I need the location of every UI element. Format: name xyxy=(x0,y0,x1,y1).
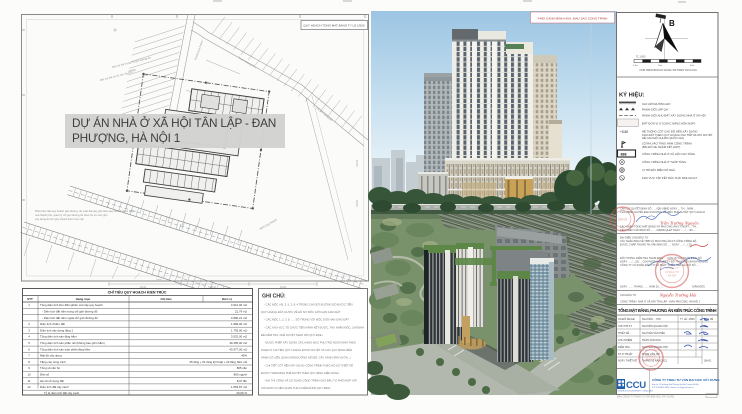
svg-text:4.890,21 m2: 4.890,21 m2 xyxy=(231,316,247,320)
svg-text:1.653,87 m2: 1.653,87 m2 xyxy=(231,385,247,389)
svg-text:Tổng diện tích sàn phần nổi (k: Tổng diện tích sàn phần nổi (không bao g… xyxy=(40,341,105,345)
svg-text:Chỉ tiêu: Chỉ tiêu xyxy=(161,297,172,301)
svg-text:25 tầng + 01 tầng kỹ thuật + 0: 25 tầng + 01 tầng kỹ thuật + 02 tầng hầm… xyxy=(189,360,247,364)
svg-text:21,79 m2: 21,79 m2 xyxy=(235,310,247,314)
svg-text:Diện tích đất cây xanh: Diện tích đất cây xanh xyxy=(40,385,69,389)
svg-text:Hệ số sử dụng đất: Hệ số sử dụng đất xyxy=(40,379,64,383)
svg-text:Dân số: Dân số xyxy=(40,373,50,377)
svg-text:Mật độ xây dựng: Mật độ xây dựng xyxy=(40,354,62,358)
svg-text:Tổng diện tích khu đất nghiên: Tổng diện tích khu đất nghiên cứu lập qu… xyxy=(40,303,103,307)
svg-text:3.522,00 m2: 3.522,00 m2 xyxy=(231,335,247,339)
svg-text:Diện tích xây dựng tầng 1: Diện tích xây dựng tầng 1 xyxy=(40,328,74,332)
svg-text:GHI CHÚ:: GHI CHÚ: xyxy=(262,293,286,300)
svg-text:Tỷ lệ diện tích đất cây xanh: Tỷ lệ diện tích đất cây xanh xyxy=(44,391,80,395)
svg-text:8,07 lần: 8,07 lần xyxy=(237,379,248,383)
svg-text:1.793,00 m2: 1.793,00 m2 xyxy=(231,328,247,332)
svg-text:4.912,00 m2: 4.912,00 m2 xyxy=(231,303,247,307)
svg-text:Hạng mục: Hạng mục xyxy=(76,297,91,301)
svg-text:12: 12 xyxy=(27,385,31,389)
svg-text:- Diện tích đất nằm trong chỉ: - Diện tích đất nằm trong chỉ giới đường… xyxy=(42,309,98,314)
svg-text:1.969,00 m2: 1.969,00 m2 xyxy=(231,322,247,326)
svg-text:Tổng diện tích sàn toàn phần t: Tổng diện tích sàn toàn phần tầng hầm xyxy=(40,347,91,351)
svg-text:10: 10 xyxy=(27,373,31,377)
svg-text:11: 11 xyxy=(27,379,30,383)
svg-text:Diện tích chiếm đất: Diện tích chiếm đất xyxy=(40,322,65,326)
svg-text:STT: STT xyxy=(27,297,33,301)
svg-text:40%: 40% xyxy=(241,354,247,358)
svg-text:Tổng diện tích sàn tầng hầm: Tổng diện tích sàn tầng hầm xyxy=(40,335,77,339)
svg-text:43.977,00 m2: 43.977,00 m2 xyxy=(229,347,247,351)
svg-text:40.455,00 m2: 40.455,00 m2 xyxy=(229,341,247,345)
svg-text:CHỈ TIÊU QUY HOẠCH KIẾN TRÚC: CHỈ TIÊU QUY HOẠCH KIẾN TRÚC xyxy=(108,290,167,295)
svg-text:20,06 %: 20,06 % xyxy=(236,391,247,395)
svg-text:Tổng số căn hộ: Tổng số căn hộ xyxy=(40,366,60,370)
svg-text:- Diện tích đất nằm ngoài chỉ: - Diện tích đất nằm ngoài chỉ giới đường… xyxy=(42,315,98,320)
svg-text:805 căn: 805 căn xyxy=(237,366,248,370)
svg-text:Tầng cao công trình: Tầng cao công trình xyxy=(40,360,66,364)
svg-text:Đơn vị: Đơn vị xyxy=(222,297,232,301)
svg-text:860 người: 860 người xyxy=(234,373,248,377)
